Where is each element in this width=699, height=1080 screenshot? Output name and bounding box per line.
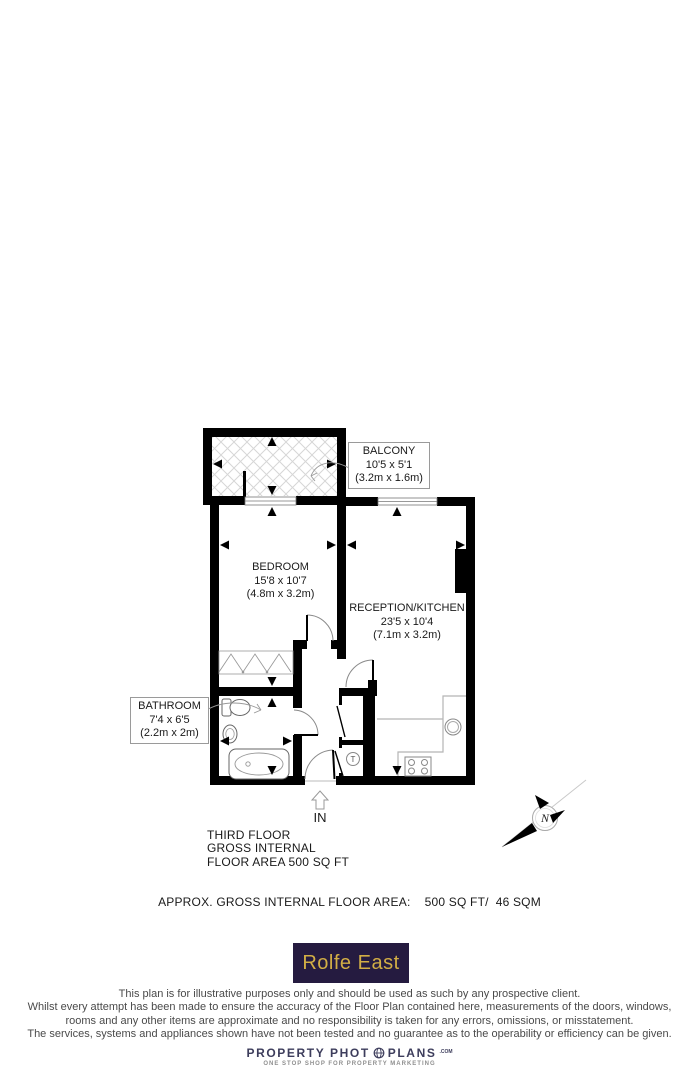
arrow-right (283, 737, 292, 746)
room-size-metric: (7.1m x 3.2m) (344, 629, 470, 643)
floorplan-drawing: T (0, 0, 699, 1080)
provider-tagline: ONE STOP SHOP FOR PROPERTY MARKETING (0, 1061, 699, 1067)
bottom-wall-right (336, 776, 475, 785)
entry-door-leaf (333, 750, 335, 779)
entrance-label: IN (304, 810, 336, 825)
room-size-imperial: 7'4 x 6'5 (131, 714, 208, 728)
bathroom-right-wall-lower (293, 735, 302, 780)
balcony-bottom-wall-left (203, 496, 245, 505)
area-summary: APPROX. GROSS INTERNAL FLOOR AREA: 500 S… (0, 895, 699, 909)
arrow-up (393, 507, 402, 516)
floorplan-page: T (0, 0, 699, 1080)
provider-name-part2: PLANS (388, 1046, 437, 1060)
bedroom-label: BEDROOM 15'8 x 10'7 (4.8m x 3.2m) (228, 561, 333, 602)
disclaimer-line: The services, systems and appliances sho… (0, 1028, 699, 1041)
wardrobe-dot (266, 671, 269, 674)
floor-info: THIRD FLOOR GROSS INTERNAL FLOOR AREA 50… (207, 829, 349, 869)
closet-right-wall (363, 696, 375, 780)
disclaimer-line: This plan is for illustrative purposes o… (0, 988, 699, 1001)
left-wall (210, 497, 219, 785)
disclaimer-line: Whilst every attempt has been made to en… (0, 1001, 699, 1014)
balcony-right-wall (337, 428, 346, 497)
room-size-imperial: 23'5 x 10'4 (344, 616, 470, 630)
closet-left-wall-c (339, 773, 342, 780)
disclaimer-line: rooms and any other items are approximat… (0, 1015, 699, 1028)
column (455, 549, 466, 593)
agent-logo: Rolfe East (293, 943, 409, 983)
balcony-divider (243, 471, 246, 497)
entry-door-arc (305, 750, 333, 779)
wardrobe-dot (242, 671, 245, 674)
room-size-imperial: 15'8 x 10'7 (228, 575, 333, 589)
balcony-top-wall (203, 428, 346, 437)
bathroom-label-box: BATHROOM 7'4 x 6'5 (2.2m x 2m) (130, 697, 209, 744)
room-size-metric: (4.8m x 3.2m) (228, 588, 333, 602)
arrow-left (220, 541, 229, 550)
arrow-down (393, 766, 402, 775)
room-name: BATHROOM (131, 700, 208, 714)
closet-door-upper (337, 706, 345, 737)
provider-name-part1: PROPERTY PHOT (247, 1046, 370, 1060)
room-name: RECEPTION/KITCHEN (344, 602, 470, 616)
arrow-down (268, 677, 277, 686)
bathtub-icon (229, 749, 289, 779)
bathroom-top-wall (219, 687, 302, 696)
wardrobe (219, 651, 293, 674)
closet-left-wall-b (339, 737, 342, 748)
tank-label: T (351, 755, 356, 764)
arrow-up (268, 507, 277, 516)
entrance-arrow-icon (312, 791, 328, 809)
tank: T (347, 753, 360, 766)
compass-icon: N (502, 780, 586, 847)
bathroom-door-arc (294, 710, 318, 735)
wardrobe-outline (219, 651, 293, 674)
closet-top-wall (339, 688, 377, 696)
provider-name-suffix: .COM (439, 1049, 452, 1055)
agent-logo-text: Rolfe East (302, 952, 399, 975)
room-name: BEDROOM (228, 561, 333, 575)
balcony-left-wall (203, 428, 212, 505)
closet-door-lower (335, 751, 343, 776)
arrow-left (347, 541, 356, 550)
floor-info-line: FLOOR AREA 500 SQ FT (207, 856, 349, 869)
disclaimer: This plan is for illustrative purposes o… (0, 988, 699, 1042)
room-size-metric: (3.2m x 1.6m) (349, 472, 429, 486)
room-size-metric: (2.2m x 2m) (131, 727, 208, 741)
toilet-bowl-icon (230, 700, 250, 716)
arrow-right (327, 541, 336, 550)
reception-label: RECEPTION/KITCHEN 23'5 x 10'4 (7.1m x 3.… (344, 602, 470, 643)
compass-needle-sw (502, 823, 537, 847)
bathroom-fixtures (222, 699, 289, 779)
floor-info-line: THIRD FLOOR (207, 829, 349, 842)
room-name: BALCONY (349, 445, 429, 459)
provider-logo: PROPERTY PHOT PLANS .COM ONE STOP SHOP F… (0, 1046, 699, 1067)
room-size-imperial: 10'5 x 5'1 (349, 459, 429, 473)
globe-icon (373, 1047, 385, 1059)
kitchen (377, 696, 466, 776)
bedroom-door-arc (307, 615, 333, 641)
balcony-bottom-wall-right (296, 496, 337, 505)
compass-north-label: N (540, 811, 550, 825)
bathroom-right-wall-upper (293, 640, 302, 708)
balcony-label-box: BALCONY 10'5 x 5'1 (3.2m x 1.6m) (348, 442, 430, 489)
arrow-up (268, 698, 277, 707)
arrow-right (456, 541, 465, 550)
provider-logo-row: PROPERTY PHOT PLANS .COM (0, 1046, 699, 1060)
closet-left-wall-a (339, 696, 342, 705)
closet-divider (342, 740, 363, 745)
top-wall-left-of-window (337, 497, 378, 506)
floor-info-line: GROSS INTERNAL (207, 842, 349, 855)
